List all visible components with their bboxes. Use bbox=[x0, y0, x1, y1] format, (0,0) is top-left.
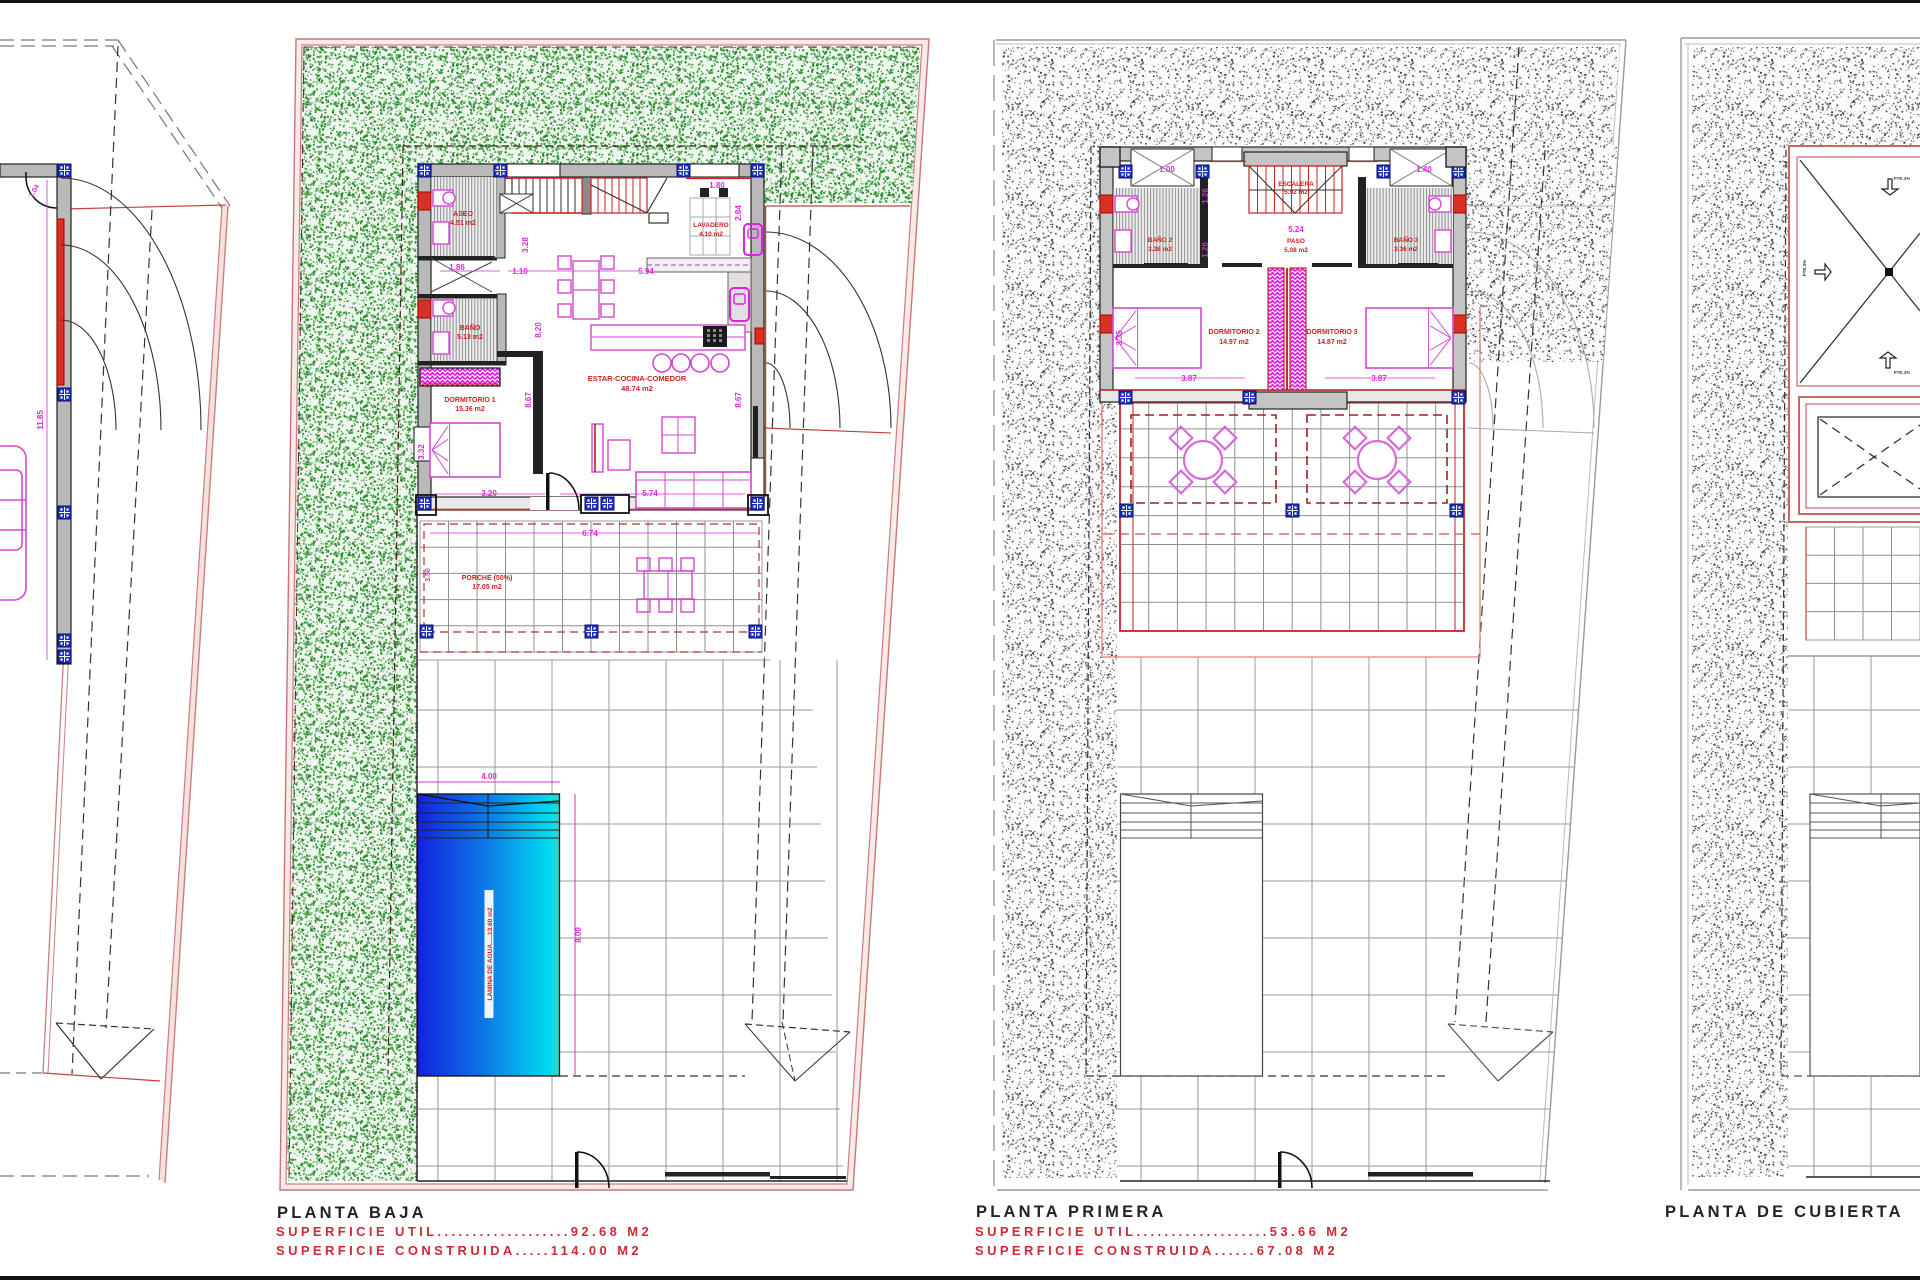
svg-text:8.20: 8.20 bbox=[534, 322, 543, 338]
svg-text:5.24: 5.24 bbox=[1288, 225, 1304, 234]
svg-text:3.50: 3.50 bbox=[425, 568, 432, 582]
svg-text:3.87: 3.87 bbox=[1371, 374, 1387, 383]
svg-text:DORMITORIO 2: DORMITORIO 2 bbox=[1208, 329, 1259, 336]
svg-text:BAÑO: BAÑO bbox=[460, 323, 481, 332]
svg-text:14.97 m2: 14.97 m2 bbox=[1219, 339, 1249, 346]
svg-text:SUPERFICIE CONSTRUIDA.....114.: SUPERFICIE CONSTRUIDA.....114.00 M2 bbox=[276, 1243, 642, 1258]
svg-text:5.92 m2: 5.92 m2 bbox=[1284, 189, 1308, 196]
svg-text:BAÑO 3: BAÑO 3 bbox=[1394, 235, 1419, 244]
svg-text:PASO: PASO bbox=[1287, 238, 1305, 245]
svg-text:PORCHE (50%): PORCHE (50%) bbox=[462, 575, 513, 582]
svg-text:3.36 m2: 3.36 m2 bbox=[1394, 246, 1418, 253]
svg-text:SUPERFICIE UTIL...............: SUPERFICIE UTIL...................92.68 … bbox=[276, 1224, 652, 1239]
svg-text:14.87 m2: 14.87 m2 bbox=[1317, 339, 1347, 346]
svg-text:DORMITORIO 1: DORMITORIO 1 bbox=[444, 397, 495, 404]
svg-text:8.67: 8.67 bbox=[524, 392, 533, 408]
svg-text:PLANTA BAJA: PLANTA BAJA bbox=[277, 1204, 427, 1222]
svg-text:PTE.3%: PTE.3% bbox=[1894, 370, 1911, 375]
svg-text:SUPERFICIE CONSTRUIDA......67.: SUPERFICIE CONSTRUIDA......67.08 M2 bbox=[975, 1243, 1338, 1258]
svg-text:5.94: 5.94 bbox=[638, 267, 654, 276]
svg-text:8.00: 8.00 bbox=[574, 927, 583, 943]
svg-text:PLANTA DE CUBIERTA: PLANTA DE CUBIERTA bbox=[1665, 1203, 1904, 1221]
svg-text:1.20: 1.20 bbox=[1201, 242, 1210, 258]
svg-text:ESTAR-COCINA-COMEDOR: ESTAR-COCINA-COMEDOR bbox=[588, 374, 687, 383]
svg-text:BAÑO 2: BAÑO 2 bbox=[1148, 235, 1173, 244]
svg-text:2.84: 2.84 bbox=[734, 205, 743, 221]
svg-text:DORMITORIO 3: DORMITORIO 3 bbox=[1306, 329, 1357, 336]
svg-text:3.20: 3.20 bbox=[481, 489, 497, 498]
svg-text:6.74: 6.74 bbox=[582, 529, 598, 538]
svg-text:3.28: 3.28 bbox=[521, 237, 530, 253]
svg-text:5.13 m2: 5.13 m2 bbox=[457, 334, 483, 341]
svg-text:4.51 m2: 4.51 m2 bbox=[450, 220, 476, 227]
svg-text:48.74 m2: 48.74 m2 bbox=[621, 384, 653, 393]
svg-text:1.10: 1.10 bbox=[512, 267, 528, 276]
svg-text:15.36 m2: 15.36 m2 bbox=[455, 406, 485, 413]
svg-text:5.08 m2: 5.08 m2 bbox=[1284, 247, 1308, 254]
svg-text:LAMINA DE AGUA.....13.60 m2: LAMINA DE AGUA.....13.60 m2 bbox=[487, 907, 494, 1000]
svg-text:LAVADERO: LAVADERO bbox=[693, 222, 729, 229]
svg-text:3.38 m2: 3.38 m2 bbox=[1148, 246, 1172, 253]
svg-text:ESCALERA: ESCALERA bbox=[1278, 181, 1314, 188]
svg-text:SUPERFICIE UTIL...............: SUPERFICIE UTIL...................53.66 … bbox=[975, 1224, 1351, 1239]
svg-text:PLANTA PRIMERA: PLANTA PRIMERA bbox=[976, 1203, 1167, 1221]
svg-text:1.04: 1.04 bbox=[28, 184, 41, 199]
svg-text:4.00: 4.00 bbox=[481, 772, 497, 781]
svg-text:3.87: 3.87 bbox=[1181, 374, 1197, 383]
svg-text:3.35: 3.35 bbox=[1115, 330, 1124, 346]
svg-text:11.85: 11.85 bbox=[36, 410, 45, 430]
svg-text:PTE.3%: PTE.3% bbox=[1802, 260, 1807, 277]
svg-text:17.05 m2: 17.05 m2 bbox=[472, 584, 502, 591]
svg-text:1.40: 1.40 bbox=[1416, 165, 1432, 174]
svg-text:1.80: 1.80 bbox=[709, 181, 725, 190]
svg-text:1.26: 1.26 bbox=[1201, 188, 1210, 204]
svg-text:ASEO: ASEO bbox=[453, 211, 473, 218]
svg-text:8.67: 8.67 bbox=[734, 392, 743, 408]
svg-text:4.10 m2: 4.10 m2 bbox=[699, 231, 723, 238]
svg-text:3.32: 3.32 bbox=[417, 444, 426, 460]
svg-text:5.74: 5.74 bbox=[642, 489, 658, 498]
svg-text:PTE.3%: PTE.3% bbox=[1894, 176, 1911, 181]
svg-text:1.00: 1.00 bbox=[1159, 165, 1175, 174]
